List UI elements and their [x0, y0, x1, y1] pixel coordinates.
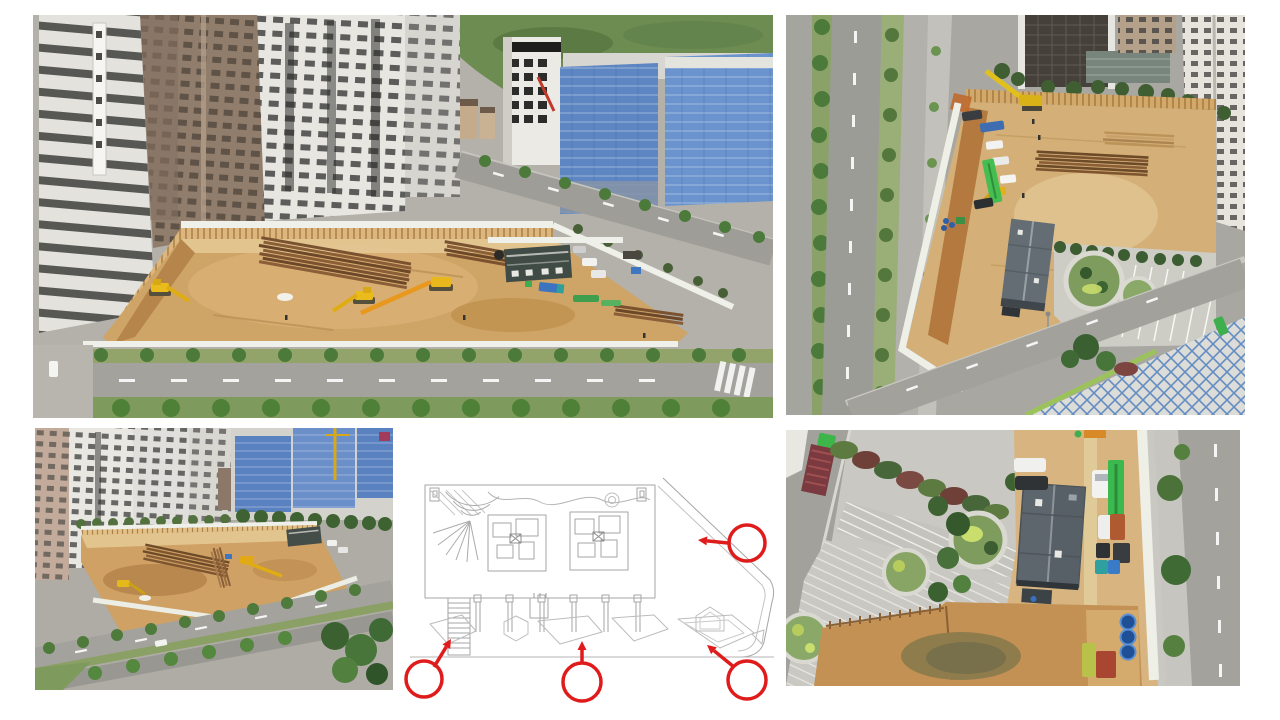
arrow-top-right-head	[698, 536, 707, 545]
boulevard	[33, 341, 773, 418]
green-barrel	[525, 281, 532, 287]
blue-water-tanks	[1121, 615, 1136, 660]
white-boundary-wall	[83, 341, 678, 347]
orange-boom	[1084, 430, 1106, 438]
parked-car	[49, 361, 58, 377]
beige-tower	[1118, 15, 1176, 53]
unit-core-west	[488, 515, 546, 571]
blue-net-construction	[231, 428, 393, 520]
photo-bottom-right-art	[786, 430, 1240, 686]
office-tower	[503, 37, 561, 165]
site-office	[504, 245, 572, 283]
main-road	[822, 15, 882, 415]
photo-top-right	[786, 15, 1245, 415]
water-tank	[494, 250, 504, 260]
site-plan-drawing	[400, 430, 780, 720]
blue-machine	[225, 554, 232, 559]
photo-bottom-left	[35, 428, 393, 690]
left-white-tower	[39, 15, 155, 333]
white-tower-pair	[257, 15, 410, 221]
stair-run	[448, 598, 470, 655]
photo-top-left	[33, 15, 773, 418]
site-fence	[181, 221, 553, 228]
orange-container	[1110, 514, 1125, 540]
parked-car	[327, 540, 337, 546]
arrow-bottom-right	[714, 651, 734, 667]
photo-top-left-art	[33, 15, 773, 418]
sidewalk-tree-row	[94, 348, 746, 362]
garden-circle-large	[1066, 253, 1122, 309]
brown-towers	[140, 15, 265, 248]
blue-cab	[1108, 560, 1120, 574]
colonnade	[474, 595, 641, 632]
parked-car	[338, 547, 348, 553]
billboard	[379, 432, 390, 441]
office-back-wall	[488, 237, 623, 243]
arrow-bottom-center-head	[578, 641, 587, 650]
concrete-path	[1084, 430, 1097, 630]
photo-top-right-art	[786, 15, 1245, 415]
red-shrubs	[1114, 362, 1138, 376]
teal-truck	[1095, 560, 1108, 574]
dark-car	[1015, 476, 1048, 490]
white-car	[1014, 458, 1046, 472]
median-verge	[33, 397, 773, 418]
green-crane-truck	[1108, 460, 1124, 522]
grey-slim-tower	[405, 15, 460, 197]
road	[33, 363, 773, 397]
marker-bottom-center	[563, 663, 601, 701]
garden-circle	[884, 550, 928, 594]
blue-machine	[631, 267, 641, 274]
arrow-top-right	[707, 541, 728, 543]
site-office	[286, 526, 322, 546]
hill-trees	[623, 21, 763, 49]
unit-core-east	[570, 512, 628, 570]
photo-bottom-right	[786, 430, 1240, 686]
dark-suv	[1096, 543, 1110, 558]
marker-bottom-left	[406, 661, 442, 697]
site-plan	[400, 430, 780, 720]
marker-top-right	[729, 525, 765, 561]
container	[623, 251, 641, 259]
slide-canvas	[0, 0, 1280, 720]
photo-bottom-left-art	[35, 428, 393, 690]
